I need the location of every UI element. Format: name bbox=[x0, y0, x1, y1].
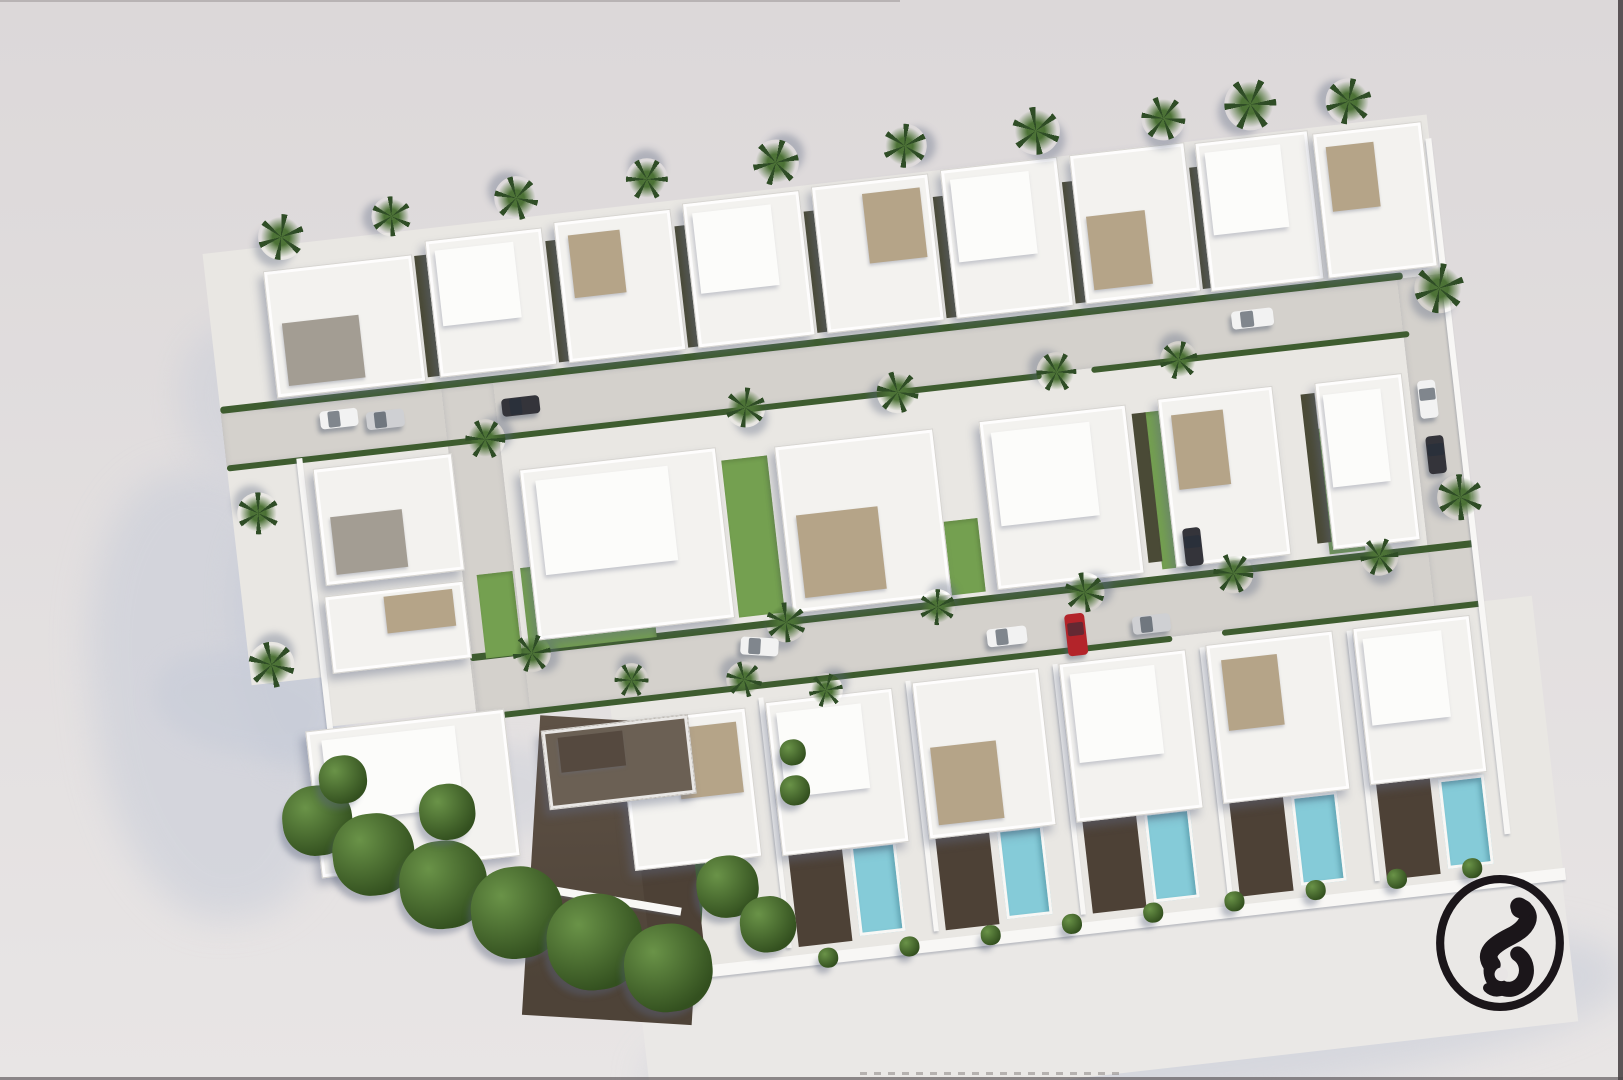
tan-roof-patch bbox=[1325, 142, 1381, 212]
stylized-s-icon bbox=[1432, 872, 1568, 1014]
flat-roof-slab bbox=[991, 421, 1100, 526]
villa-house bbox=[811, 173, 945, 333]
flat-roof-slab bbox=[535, 466, 678, 576]
tan-roof-patch bbox=[1086, 210, 1153, 290]
tan-roof-patch bbox=[567, 230, 626, 299]
flat-roof-slab bbox=[1323, 388, 1392, 487]
car-windshield bbox=[995, 629, 1009, 645]
villa-house bbox=[313, 453, 465, 586]
faint-watermark-line bbox=[860, 1072, 1120, 1075]
tan-roof-patch bbox=[796, 506, 887, 598]
villa-house bbox=[263, 254, 427, 398]
villa-house bbox=[682, 190, 816, 348]
backyard bbox=[935, 829, 1000, 930]
tan-roof-patch bbox=[1171, 409, 1231, 490]
villa-house bbox=[940, 157, 1074, 319]
villa-house bbox=[1069, 142, 1201, 304]
car-windshield bbox=[328, 411, 341, 427]
villa-house bbox=[553, 209, 686, 363]
car-windshield bbox=[1184, 535, 1200, 548]
flat-roof-slab bbox=[1204, 145, 1289, 236]
palm-tree bbox=[493, 175, 539, 221]
villa-house bbox=[912, 668, 1057, 839]
villa-house bbox=[324, 581, 472, 674]
palm-tree bbox=[1010, 105, 1062, 157]
image-edge-line-right bbox=[1618, 0, 1623, 1080]
backyard bbox=[1376, 778, 1441, 879]
car-windshield bbox=[374, 412, 387, 428]
villa-house bbox=[519, 447, 735, 640]
car-windshield bbox=[509, 398, 522, 414]
villa-house bbox=[424, 227, 557, 377]
backyard bbox=[788, 845, 853, 946]
car-windshield bbox=[748, 638, 760, 654]
flat-roof-slab bbox=[1070, 665, 1165, 763]
gray-roof-patch bbox=[330, 509, 408, 575]
flat-roof-slab bbox=[692, 204, 779, 293]
car-windshield bbox=[1140, 616, 1153, 632]
car-windshield bbox=[1240, 311, 1254, 327]
flat-roof-slab bbox=[435, 241, 522, 326]
palm-tree bbox=[1132, 88, 1194, 150]
villa-house bbox=[1314, 373, 1420, 550]
villa-house bbox=[541, 714, 697, 810]
flat-roof-slab bbox=[1363, 630, 1451, 726]
villa-house bbox=[1352, 615, 1487, 785]
car-windshield bbox=[1419, 388, 1435, 401]
palm-tree bbox=[1220, 74, 1280, 134]
villa-house bbox=[1157, 386, 1291, 568]
villa-house bbox=[978, 404, 1144, 590]
villa-house bbox=[774, 428, 952, 613]
flat-roof-slab bbox=[950, 171, 1038, 262]
backyard bbox=[1229, 795, 1294, 896]
palm-tree bbox=[874, 115, 936, 177]
backyard bbox=[1082, 812, 1147, 913]
palm-tree bbox=[752, 139, 799, 186]
tan-roof-patch bbox=[1221, 654, 1285, 731]
villa-house bbox=[1058, 649, 1203, 822]
tan-roof-patch bbox=[862, 187, 928, 263]
dark-roof-patch bbox=[557, 730, 626, 772]
tan-roof-patch bbox=[383, 589, 456, 633]
render-canvas bbox=[0, 0, 1623, 1080]
parked-car bbox=[740, 636, 779, 656]
car-windshield bbox=[1067, 622, 1085, 636]
gray-roof-patch bbox=[282, 315, 366, 386]
villa-house bbox=[1205, 631, 1350, 804]
developer-logo bbox=[1432, 872, 1568, 1014]
villa-house bbox=[1194, 130, 1324, 292]
villa-house bbox=[765, 688, 910, 856]
image-edge-line-top bbox=[0, 0, 900, 2]
villa-house bbox=[1312, 121, 1438, 279]
development-plot bbox=[129, 79, 1511, 1021]
car-windshield bbox=[1427, 443, 1443, 456]
tan-roof-patch bbox=[930, 740, 1004, 825]
